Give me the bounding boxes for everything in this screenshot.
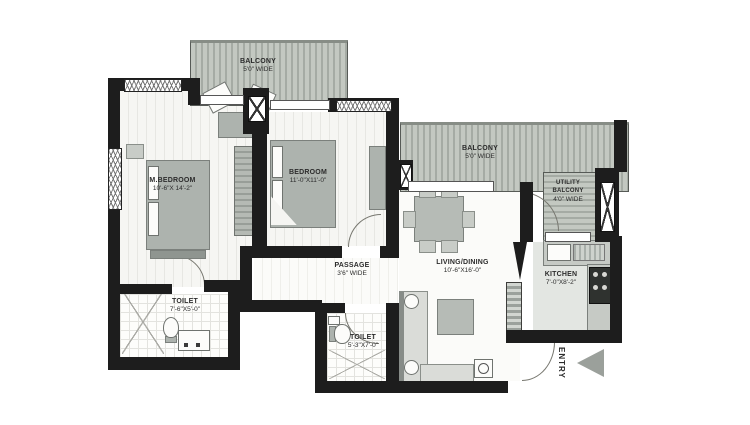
room-dims: 3'6" WIDE: [312, 270, 392, 278]
toilet1-tap: [184, 343, 188, 347]
window-mbedroom-left: [108, 148, 122, 210]
window-bedroom-top: [336, 100, 392, 112]
coffee-table: [437, 299, 474, 335]
entry-label: ENTRY: [557, 347, 566, 379]
label-bedroom: BEDROOM 11'-0"X11'-0": [268, 168, 348, 186]
dining-chair: [419, 240, 436, 253]
wall-bedroom-bottom: [252, 246, 342, 258]
window-mbedroom-top: [124, 79, 182, 92]
room-name: TOILET: [350, 334, 376, 341]
master-wardrobe: [234, 146, 254, 236]
room-name: LIVING/DINING: [436, 259, 488, 266]
room-name: M.BEDROOM: [149, 177, 195, 184]
room-name: PASSAGE: [334, 262, 369, 269]
label-balcony-mid: BALCONY 5'0" WIDE: [430, 144, 530, 162]
label-balcony-top: BALCONY 5'0" WIDE: [210, 57, 306, 75]
label-toilet1: TOILET 7'-6"X5'-0": [150, 297, 220, 315]
wall-kitchen-right: [610, 236, 622, 343]
room-name: KITCHEN: [545, 271, 578, 278]
room-dims: 10'-6"X 14'-2": [130, 185, 215, 193]
master-bed-bench: [150, 250, 206, 259]
wall-toilet1-top-left: [120, 284, 172, 294]
sofa-cushion: [404, 294, 419, 309]
bedroom-wardrobe-unit: [369, 146, 386, 210]
label-utility-balcony: UTILITY BALCONY 4'0" WIDE: [544, 180, 592, 204]
dining-chair: [403, 211, 416, 228]
room-dims: 5'0" WIDE: [430, 153, 530, 161]
wall-outer-left: [108, 78, 120, 370]
mbedroom-balcony-door: [200, 95, 244, 105]
room-dims: 5'-3"X7'-0": [337, 342, 389, 350]
bed-blanket-fold: [271, 196, 297, 225]
fixture-ring-icon: [478, 363, 489, 374]
wall-living-right-upper: [520, 182, 533, 242]
room-name: BALCONY: [552, 188, 583, 194]
wall-passage-left: [240, 246, 252, 304]
label-kitchen: KITCHEN 7'-0"X8'-2": [532, 270, 590, 288]
wall-kitchen-half: [506, 282, 522, 332]
room-dims: 4'0" WIDE: [544, 196, 592, 204]
label-passage: PASSAGE 3'6" WIDE: [312, 261, 392, 279]
window-balcony-column: [248, 96, 266, 122]
sofa-cushion: [404, 360, 419, 375]
wall-toilet1-bottom: [108, 357, 240, 370]
room-dims: 7'-6"X5'-0": [150, 306, 220, 314]
master-bed-pillow: [148, 202, 159, 236]
toilet1-wc: [163, 317, 179, 338]
room-dims: 5'0" WIDE: [210, 66, 306, 74]
room-dims: 11'-0"X11'-0": [268, 177, 348, 185]
room-name: BEDROOM: [289, 169, 327, 176]
toilet1-tap: [196, 343, 200, 347]
wall-toilet2-left: [315, 303, 327, 393]
wall-toilet2-top: [315, 303, 345, 313]
toilet2-shower-area: [329, 350, 385, 379]
kitchen-sink: [547, 244, 571, 261]
label-living-dining: LIVING/DINING 10'-6"X16'-0": [410, 258, 515, 276]
kitchen-stove: [589, 267, 611, 304]
label-m-bedroom: M.BEDROOM 10'-6"X 14'-2": [130, 176, 215, 194]
wall-passage-bottom: [240, 300, 322, 312]
wall-mid-balcony-end: [614, 120, 627, 172]
floor-plan: ENTRY BALCONY 5'0" WIDE M.BEDROOM 10'-6"…: [0, 0, 750, 425]
room-dims: 7'-0"X8'-2": [532, 279, 590, 287]
kitchen-door-leaf: [513, 242, 527, 280]
wall-bedroom-bottom-stub: [380, 246, 399, 258]
kitchen-drainer: [573, 244, 605, 261]
dining-table: [414, 196, 464, 242]
bedroom-balcony-door: [270, 100, 330, 110]
kitchen-utility-door: [545, 232, 591, 242]
toilet1-sink-counter: [178, 330, 210, 351]
floor-fixture: [474, 359, 493, 378]
room-dims: 10'-6"X16'-0": [410, 267, 515, 275]
master-bedside-table: [126, 144, 144, 159]
wall-balcony-left-stub: [188, 87, 200, 105]
room-name: TOILET: [172, 298, 198, 305]
toilet2-sink: [328, 316, 340, 325]
entry-arrow-icon: [577, 349, 604, 377]
room-name: BALCONY: [462, 145, 498, 152]
window-utility-balcony: [600, 182, 615, 232]
room-name: UTILITY: [556, 180, 580, 186]
wall-living-bottom: [386, 381, 508, 393]
dining-chair: [462, 211, 475, 228]
label-toilet2: TOILET 5'-3"X7'-0": [337, 333, 389, 351]
room-name: BALCONY: [240, 58, 276, 65]
entry-door-arc: [522, 342, 555, 381]
dining-chair: [441, 240, 458, 253]
wall-kitchen-bottom: [506, 330, 622, 343]
living-balcony-door: [408, 181, 494, 192]
stove-burners-icon: [593, 272, 598, 277]
